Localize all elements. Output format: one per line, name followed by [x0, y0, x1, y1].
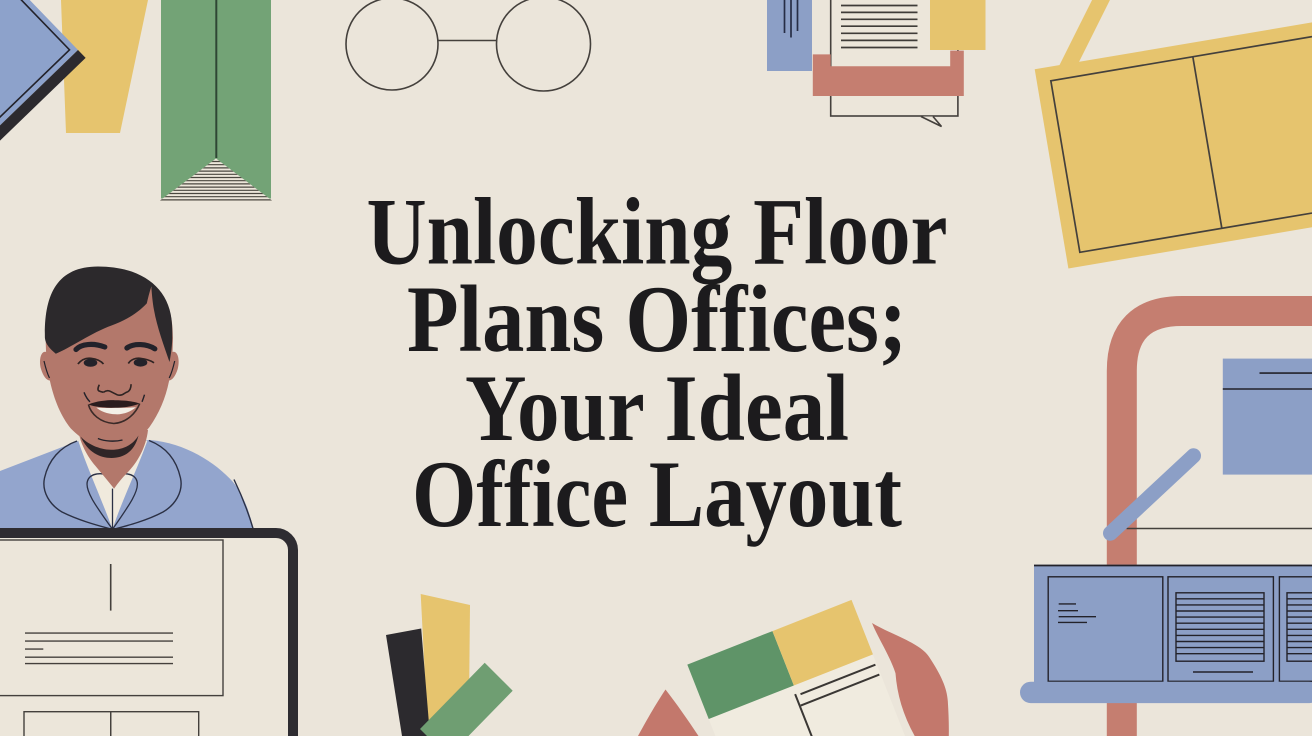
svg-text:Office Layout: Office Layout	[412, 441, 902, 547]
